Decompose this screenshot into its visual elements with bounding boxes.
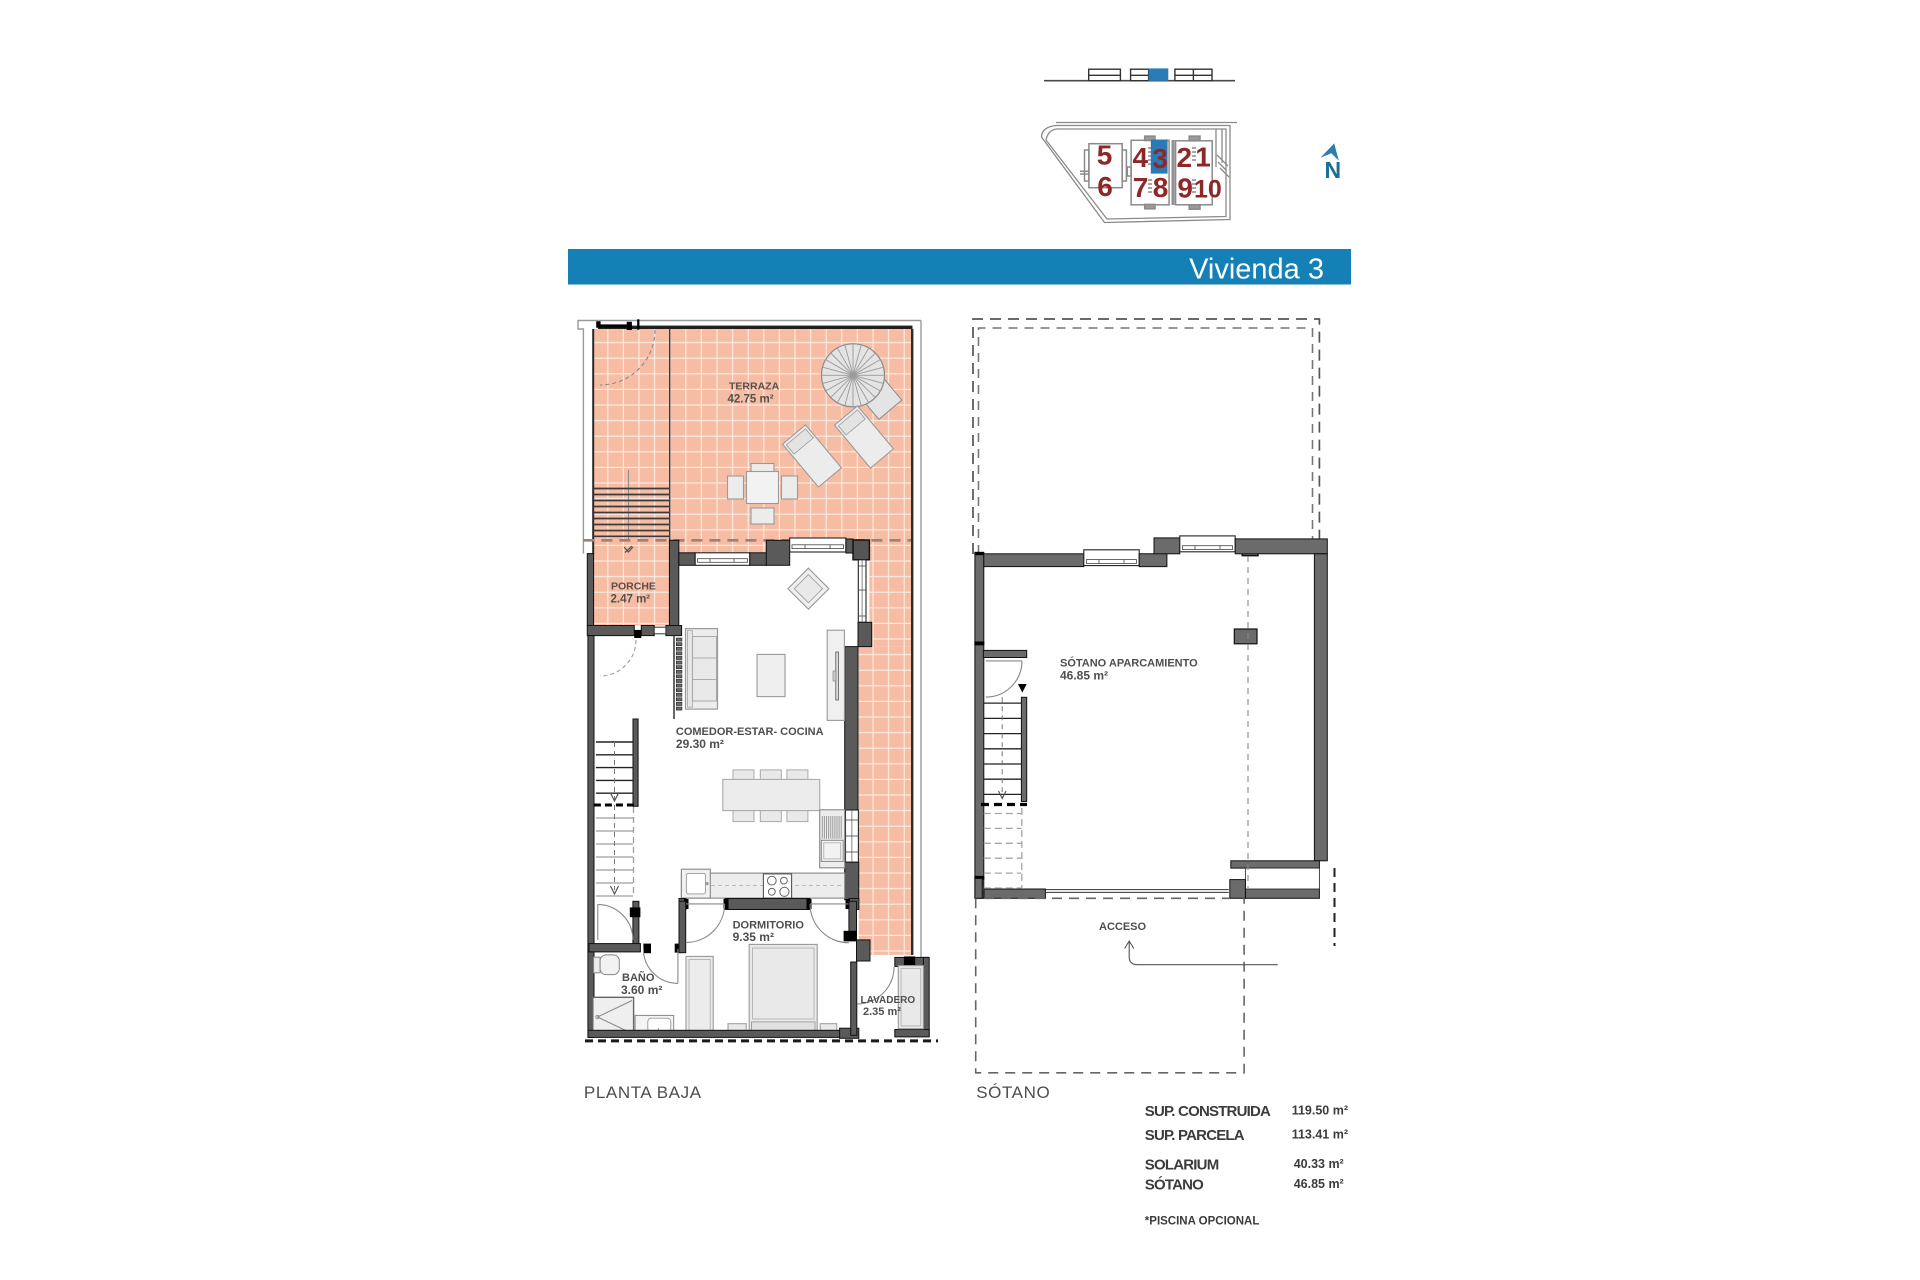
svg-text:119.50 m²: 119.50 m²: [1292, 1104, 1348, 1118]
svg-text:PLANTA BAJA: PLANTA BAJA: [584, 1083, 702, 1102]
svg-text:3.60 m²: 3.60 m²: [621, 983, 662, 997]
svg-text:29.30 m²: 29.30 m²: [676, 737, 724, 751]
svg-text:4: 4: [1133, 142, 1149, 173]
svg-text:SOLARIUM: SOLARIUM: [1145, 1157, 1219, 1174]
svg-text:7: 7: [1133, 172, 1149, 203]
svg-text:2.35 m²: 2.35 m²: [863, 1006, 901, 1018]
svg-text:42.75 m²: 42.75 m²: [728, 394, 774, 406]
svg-text:6: 6: [1097, 171, 1113, 202]
svg-text:ACCESO: ACCESO: [1099, 921, 1147, 933]
svg-text:2.47 m²: 2.47 m²: [611, 594, 651, 606]
svg-text:9: 9: [1177, 173, 1193, 204]
svg-text:9.35 m²: 9.35 m²: [733, 930, 774, 944]
svg-text:SUP. CONSTRUIDA: SUP. CONSTRUIDA: [1145, 1103, 1271, 1120]
svg-text:46.85 m²: 46.85 m²: [1294, 1177, 1344, 1191]
svg-text:8: 8: [1153, 172, 1169, 203]
svg-text:PORCHE: PORCHE: [611, 581, 656, 593]
svg-text:SUP. PARCELA: SUP. PARCELA: [1145, 1127, 1245, 1144]
svg-text:*PISCINA OPCIONAL: *PISCINA OPCIONAL: [1145, 1216, 1260, 1228]
svg-text:1: 1: [1195, 141, 1211, 172]
svg-text:2: 2: [1177, 142, 1193, 173]
svg-text:40.33 m²: 40.33 m²: [1294, 1157, 1344, 1171]
svg-text:SÓTANO: SÓTANO: [976, 1083, 1050, 1102]
svg-text:46.85 m²: 46.85 m²: [1060, 669, 1108, 683]
svg-text:Vivienda 3: Vivienda 3: [1189, 254, 1324, 286]
svg-text:5: 5: [1097, 139, 1113, 170]
svg-text:SÓTANO: SÓTANO: [1145, 1176, 1204, 1194]
svg-text:10: 10: [1194, 176, 1222, 204]
svg-text:3: 3: [1152, 143, 1168, 174]
svg-text:LAVADERO: LAVADERO: [861, 995, 916, 1006]
svg-text:TERRAZA: TERRAZA: [729, 381, 780, 393]
svg-text:N: N: [1325, 157, 1342, 183]
svg-text:113.41 m²: 113.41 m²: [1292, 1128, 1348, 1142]
